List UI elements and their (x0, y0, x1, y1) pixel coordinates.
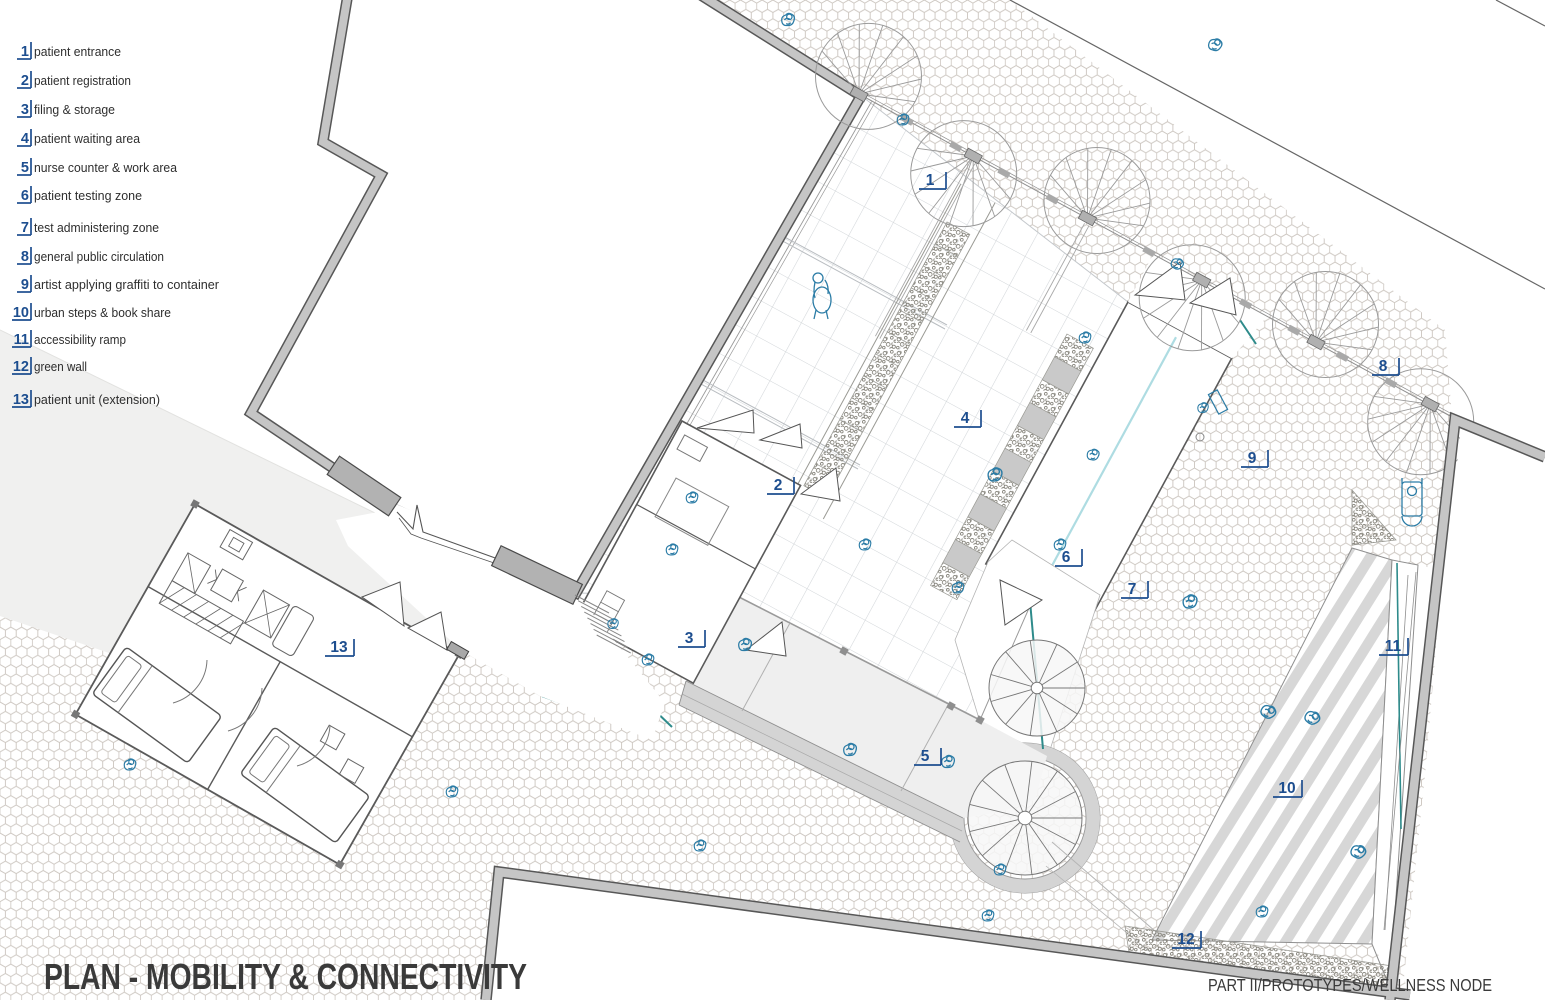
svg-text:3: 3 (21, 102, 29, 118)
svg-text:general public circulation: general public circulation (34, 250, 164, 264)
svg-text:10: 10 (1278, 780, 1295, 797)
svg-text:5: 5 (921, 748, 930, 765)
svg-text:nurse counter & work area: nurse counter & work area (34, 161, 177, 175)
svg-text:8: 8 (21, 249, 29, 265)
svg-text:green wall: green wall (34, 360, 87, 374)
svg-text:5: 5 (21, 160, 29, 176)
svg-text:12: 12 (13, 359, 29, 375)
svg-text:3: 3 (685, 630, 694, 647)
svg-text:6: 6 (1062, 549, 1071, 566)
svg-text:7: 7 (1128, 581, 1137, 598)
svg-text:accessibility ramp: accessibility ramp (34, 333, 126, 347)
svg-text:11: 11 (14, 332, 29, 348)
svg-text:patient unit (extension): patient unit (extension) (34, 393, 160, 407)
svg-text:12: 12 (1177, 931, 1194, 948)
svg-text:2: 2 (21, 73, 29, 89)
svg-text:13: 13 (13, 392, 29, 408)
svg-text:10: 10 (13, 305, 29, 321)
svg-text:11: 11 (1385, 638, 1402, 655)
svg-text:9: 9 (21, 277, 29, 293)
svg-text:4: 4 (21, 131, 29, 147)
svg-text:1: 1 (21, 44, 29, 60)
svg-text:patient testing zone: patient testing zone (34, 189, 142, 203)
svg-text:PART II/PROTOTYPES/WELLNESS NO: PART II/PROTOTYPES/WELLNESS NODE (1208, 975, 1492, 995)
svg-text:patient registration: patient registration (34, 74, 131, 88)
svg-text:1: 1 (926, 172, 935, 189)
svg-text:artist applying graffiti to co: artist applying graffiti to container (34, 278, 219, 292)
svg-text:8: 8 (1379, 358, 1388, 375)
svg-text:urban steps & book share: urban steps & book share (34, 306, 171, 320)
svg-text:7: 7 (21, 220, 29, 236)
svg-text:test administering zone: test administering zone (34, 221, 159, 235)
svg-text:filing & storage: filing & storage (34, 103, 115, 117)
svg-text:patient waiting area: patient waiting area (34, 132, 140, 146)
svg-text:6: 6 (21, 188, 29, 204)
svg-text:2: 2 (774, 477, 783, 494)
svg-text:patient entrance: patient entrance (34, 45, 121, 59)
svg-text:4: 4 (961, 410, 970, 427)
svg-text:13: 13 (330, 639, 348, 656)
svg-text:PLAN - MOBILITY & CONNECTIVITY: PLAN - MOBILITY & CONNECTIVITY (44, 956, 527, 997)
svg-text:9: 9 (1248, 450, 1257, 467)
